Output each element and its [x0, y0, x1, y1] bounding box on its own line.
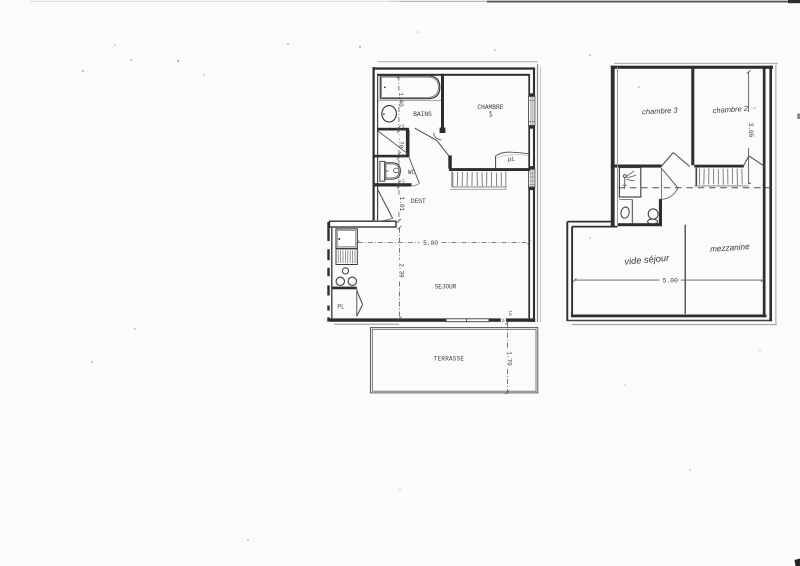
svg-text:5: 5	[502, 318, 505, 324]
svg-text:TERRASSE: TERRASSE	[434, 356, 465, 363]
svg-text:SEJOUR: SEJOUR	[435, 284, 457, 291]
svg-text:pL: pL	[507, 156, 516, 164]
svg-text:.70: .70	[397, 137, 404, 148]
svg-text:3.05: 3.05	[747, 123, 754, 138]
svg-text:BAINS: BAINS	[413, 111, 432, 118]
svg-text:1.01: 1.01	[398, 197, 405, 212]
svg-text:WC: WC	[408, 169, 416, 176]
svg-text:DEGT: DEGT	[411, 198, 426, 205]
svg-text:5: 5	[402, 179, 405, 185]
svg-text:5: 5	[402, 123, 405, 129]
svg-text:chambre 3: chambre 3	[642, 106, 679, 117]
svg-text:5.00: 5.00	[663, 278, 679, 285]
svg-text:1.40: 1.40	[397, 92, 404, 107]
svg-text:16: 16	[507, 310, 513, 316]
svg-text:5.00: 5.00	[423, 240, 438, 247]
svg-text:1.70: 1.70	[506, 351, 513, 366]
svg-text:PL: PL	[337, 304, 345, 311]
svg-text:5: 5	[402, 153, 405, 159]
svg-text:2.39: 2.39	[398, 263, 405, 278]
